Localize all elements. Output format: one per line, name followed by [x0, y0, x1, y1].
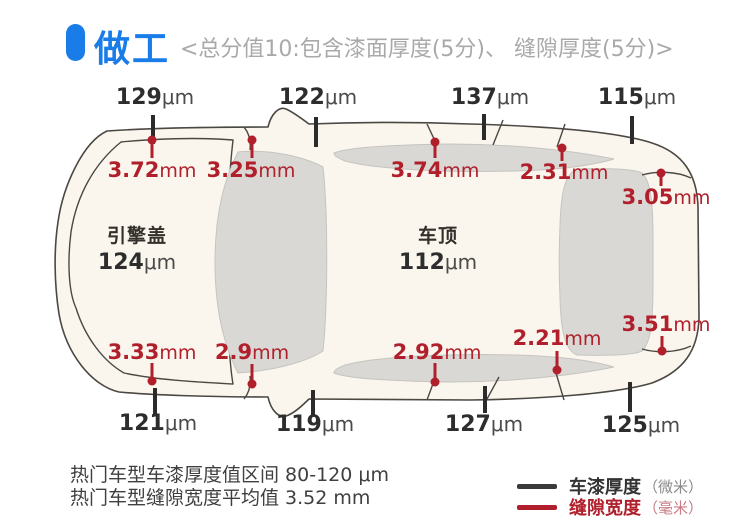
panel-label-roof: 车顶 112μm: [399, 227, 477, 274]
gap-measurement: 3.25mm: [207, 160, 296, 181]
footnotes: 热门车型车漆厚度值区间 80-120 μm 热门车型缝隙宽度平均值 3.52 m…: [70, 464, 389, 510]
paint-legend-swatch: [517, 484, 557, 489]
paint-measurement: 137μm: [451, 87, 529, 109]
paint-measurement: 121μm: [119, 413, 197, 435]
gap-measurement: 3.51mm: [622, 314, 711, 335]
paint-measurement: 129μm: [116, 87, 194, 109]
page-title: 做工: [94, 20, 170, 72]
paint-measurement: 127μm: [445, 414, 523, 436]
paint-measurement: 115μm: [598, 87, 676, 109]
gap-measurement: 3.74mm: [391, 160, 480, 181]
page-subtitle: <总分值10:包含漆面厚度(5分)、 缝隙厚度(5分)>: [180, 31, 674, 63]
gap-measurement: 3.05mm: [622, 187, 711, 208]
gap-measurement: 2.21mm: [513, 328, 602, 349]
panel-label-hood: 引擎盖 124μm: [98, 227, 176, 274]
footnote-gap-average: 热门车型缝隙宽度平均值 3.52 mm: [70, 487, 389, 510]
paint-measurement: 122μm: [279, 87, 357, 109]
gap-measurement: 3.72mm: [108, 160, 197, 181]
gap-measurement: 2.9mm: [215, 342, 289, 363]
legend-gap-width: 缝隙宽度 （毫米）: [517, 494, 703, 520]
infographic-workmanship: 做工 <总分值10:包含漆面厚度(5分)、 缝隙厚度(5分)> 129μm 12…: [0, 0, 750, 526]
paint-measurement: 125μm: [602, 415, 680, 437]
gap-measurement: 2.92mm: [393, 342, 482, 363]
gap-legend-swatch: [517, 505, 557, 510]
gap-measurement: 2.31mm: [520, 162, 609, 183]
section-bullet-icon: [66, 24, 85, 61]
footnote-paint-range: 热门车型车漆厚度值区间 80-120 μm: [70, 464, 389, 487]
paint-measurement: 119μm: [276, 414, 354, 436]
gap-measurement: 3.33mm: [108, 342, 197, 363]
